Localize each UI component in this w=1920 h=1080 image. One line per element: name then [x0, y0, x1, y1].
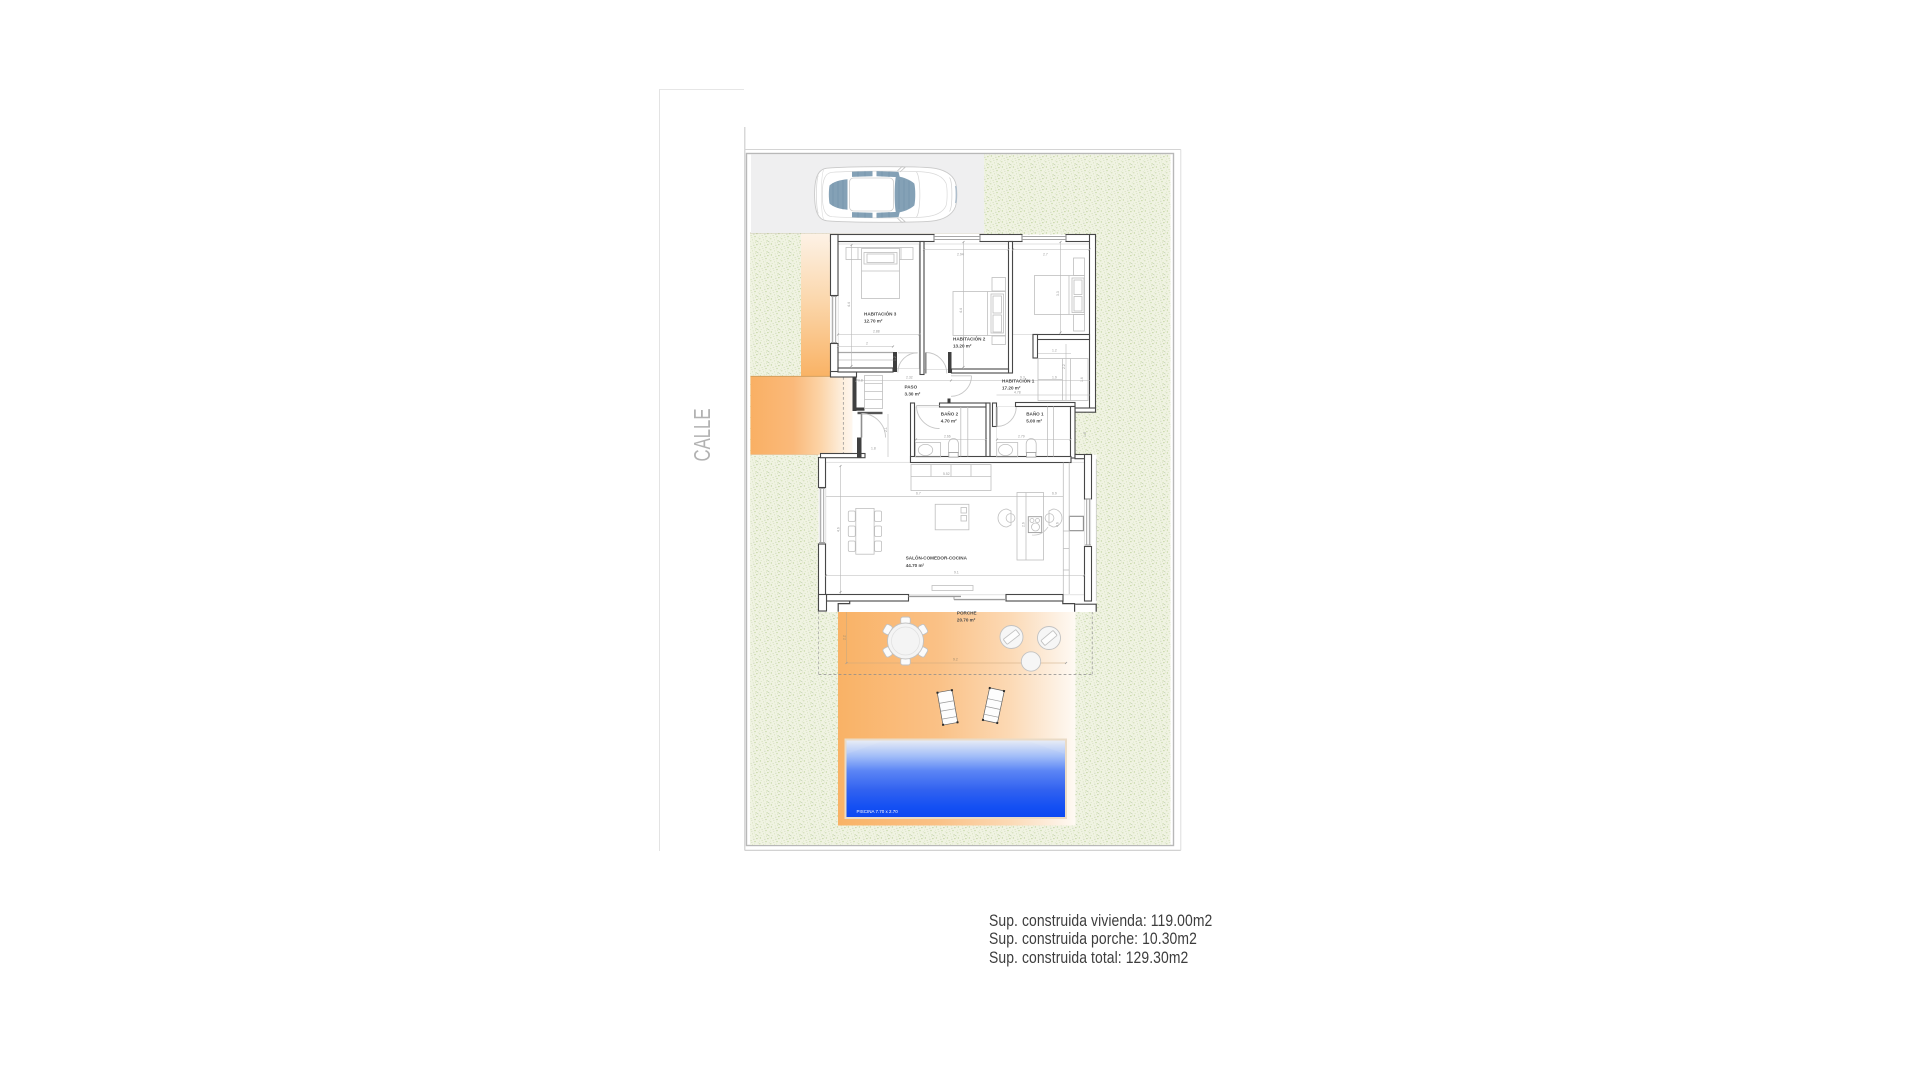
svg-text:HABITACIÓN 2: HABITACIÓN 2: [953, 335, 986, 342]
svg-text:2.79: 2.79: [1018, 435, 1025, 439]
svg-text:9.1: 9.1: [954, 571, 959, 575]
svg-text:20.70 m²: 20.70 m²: [957, 618, 976, 623]
svg-text:2.88: 2.88: [873, 330, 880, 334]
svg-text:HABITACIÓN 1: HABITACIÓN 1: [1002, 377, 1035, 384]
svg-text:4.70 m²: 4.70 m²: [941, 419, 957, 424]
svg-text:2.2: 2.2: [843, 635, 847, 640]
svg-text:5.52: 5.52: [943, 472, 950, 476]
svg-text:6.7: 6.7: [916, 492, 921, 496]
svg-text:1.2: 1.2: [1052, 349, 1057, 353]
svg-text:PASO: PASO: [905, 385, 918, 390]
svg-text:2.66: 2.66: [944, 435, 951, 439]
svg-text:4.4: 4.4: [959, 308, 963, 313]
svg-text:2.32: 2.32: [906, 376, 913, 380]
svg-text:4.4: 4.4: [847, 302, 851, 307]
svg-text:4.6: 4.6: [1056, 522, 1060, 527]
svg-text:2.7: 2.7: [1043, 253, 1048, 257]
svg-text:2.94: 2.94: [957, 253, 964, 257]
svg-text:PORCHE: PORCHE: [957, 611, 977, 616]
svg-text:13.20 m²: 13.20 m²: [953, 344, 972, 349]
svg-text:BAÑO 2: BAÑO 2: [941, 411, 959, 417]
svg-text:BAÑO 1: BAÑO 1: [1026, 411, 1044, 417]
svg-text:9.2: 9.2: [953, 658, 958, 662]
svg-text:1.6: 1.6: [1080, 377, 1084, 382]
svg-text:CALLE: CALLE: [689, 409, 715, 462]
svg-text:PISCINA 7.70 x 2.70: PISCINA 7.70 x 2.70: [857, 809, 899, 814]
svg-text:44.70 m²: 44.70 m²: [906, 563, 925, 568]
svg-text:3.3: 3.3: [1056, 291, 1060, 296]
svg-text:1.9: 1.9: [1052, 376, 1057, 380]
svg-text:4.78: 4.78: [1014, 391, 1021, 395]
svg-text:1.2: 1.2: [893, 356, 897, 361]
svg-text:0.8: 0.8: [858, 379, 863, 383]
svg-text:4.6: 4.6: [837, 527, 841, 532]
svg-text:2.1: 2.1: [884, 427, 888, 432]
svg-text:1.6: 1.6: [1083, 432, 1087, 437]
svg-text:17.20 m²: 17.20 m²: [1002, 386, 1021, 391]
svg-text:2: 2: [866, 342, 868, 346]
svg-text:3.30 m²: 3.30 m²: [905, 392, 921, 397]
svg-text:2.2: 2.2: [1062, 364, 1066, 369]
svg-text:2.6: 2.6: [1022, 522, 1026, 527]
svg-text:12.70 m²: 12.70 m²: [864, 319, 883, 324]
svg-text:SALÓN-COMEDOR-COCINA: SALÓN-COMEDOR-COCINA: [906, 554, 968, 561]
svg-text:6.9: 6.9: [1052, 492, 1057, 496]
svg-text:HABITACIÓN 3: HABITACIÓN 3: [864, 310, 897, 317]
svg-text:5.00 m²: 5.00 m²: [1026, 419, 1042, 424]
svg-text:1.8: 1.8: [871, 447, 876, 451]
